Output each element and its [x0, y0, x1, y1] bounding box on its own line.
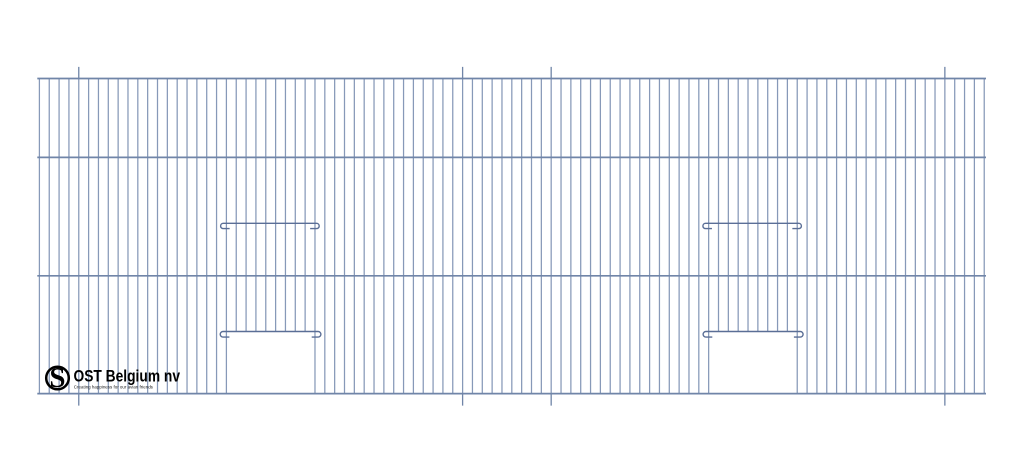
svg-text:OST Belgium nv: OST Belgium nv [74, 366, 181, 385]
svg-text:Creating happiness for our avi: Creating happiness for our avian friends [74, 385, 154, 390]
svg-text:S: S [49, 362, 65, 394]
